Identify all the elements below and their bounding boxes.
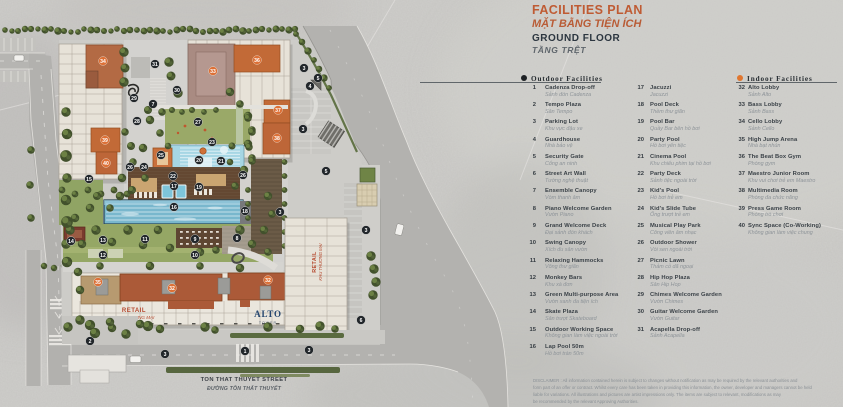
svg-text:33: 33 (210, 69, 216, 75)
svg-text:5: 5 (317, 76, 320, 82)
svg-text:3: 3 (303, 66, 306, 72)
svg-text:31: 31 (152, 62, 158, 68)
svg-text:36: 36 (254, 58, 260, 64)
svg-text:34: 34 (100, 59, 106, 65)
